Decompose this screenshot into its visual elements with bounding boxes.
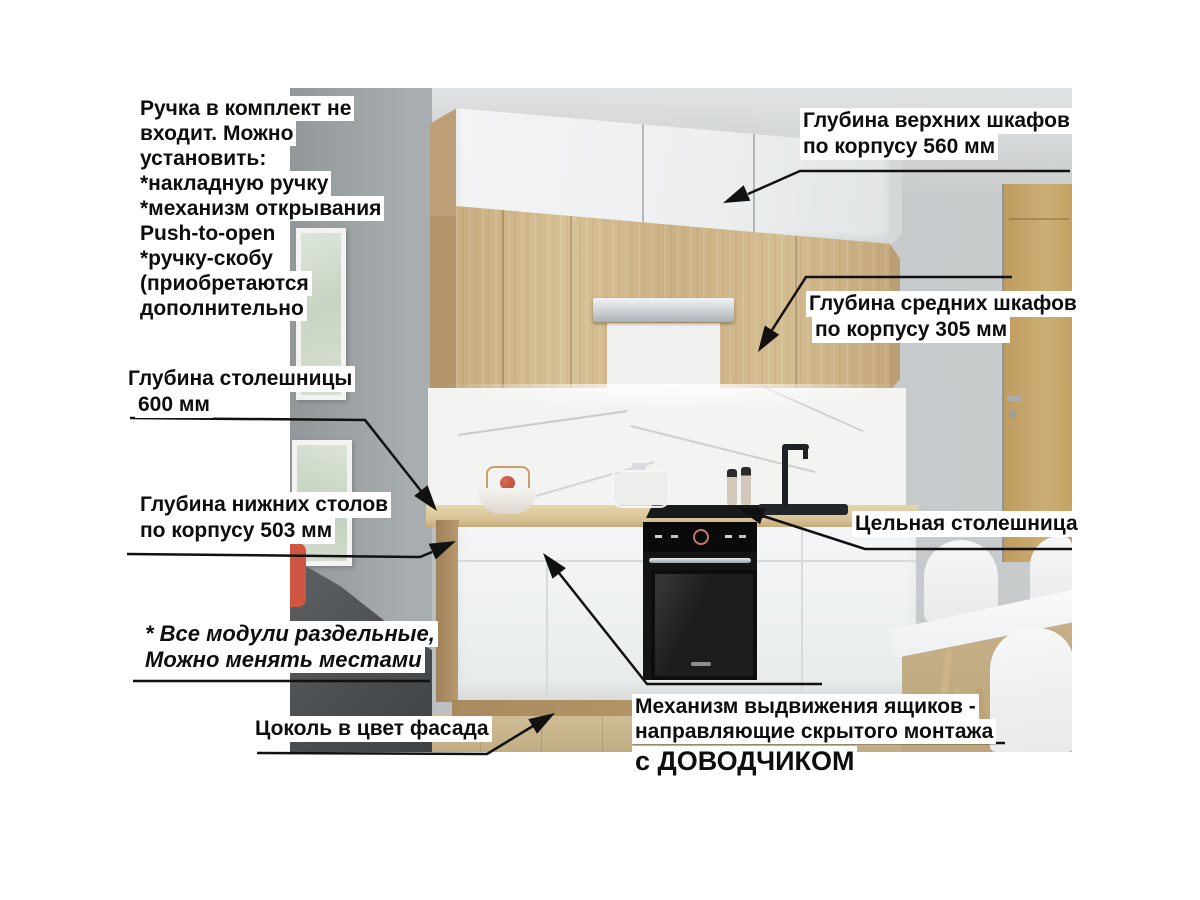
annotation-line: Глубина верхних шкафов bbox=[800, 108, 1073, 134]
annotation-line: по корпусу 305 мм bbox=[812, 317, 1010, 343]
annotation-line: дополнительно bbox=[137, 296, 307, 321]
annotation-drawer-note: Механизм выдвижения ящиков - направляющи… bbox=[632, 694, 996, 779]
arrowhead bbox=[738, 508, 765, 524]
annotation-line: *механизм открывания bbox=[137, 196, 384, 221]
annotation-line: Push-to-open bbox=[137, 221, 278, 246]
leader-line bbox=[748, 171, 1070, 194]
annotation-line: 600 мм bbox=[135, 392, 213, 418]
annotation-line: установить: bbox=[137, 146, 269, 171]
arrowhead bbox=[758, 326, 779, 353]
annotation-countertop-depth: Глубина столешницы 600 мм bbox=[125, 366, 355, 418]
annotation-line: Ручка в комплект не bbox=[137, 96, 354, 121]
arrowhead bbox=[528, 713, 555, 734]
arrowhead bbox=[543, 553, 566, 579]
leader-line bbox=[127, 552, 432, 557]
arrowhead bbox=[723, 185, 750, 203]
annotation-line: * Все модули раздельные, bbox=[142, 621, 438, 647]
annotation-line: Глубина столешницы bbox=[125, 366, 355, 392]
annotation-line: Глубина нижних столов bbox=[137, 492, 391, 518]
annotation-line: Цельная столешница bbox=[852, 511, 1081, 537]
leader-line bbox=[559, 573, 822, 684]
arrowhead bbox=[429, 541, 456, 559]
annotation-line: направляющие скрытого монтажа bbox=[632, 719, 996, 744]
annotation-base-depth: Глубина нижних столов по корпусу 503 мм bbox=[137, 492, 391, 544]
annotation-line: Цоколь в цвет фасада bbox=[252, 716, 492, 742]
leader-line bbox=[130, 418, 421, 491]
annotation-line: Глубина средних шкафов bbox=[806, 291, 1080, 317]
annotation-line: по корпусу 560 мм bbox=[800, 134, 998, 160]
annotation-middle-depth: Глубина средних шкафов по корпусу 305 мм bbox=[806, 291, 1080, 343]
annotation-upper-depth: Глубина верхних шкафов по корпусу 560 мм bbox=[800, 108, 1073, 160]
annotation-line: Можно менять местами bbox=[142, 647, 425, 673]
annotation-line: с ДОВОДЧИКОМ bbox=[632, 746, 857, 777]
annotation-line: (приобретаются bbox=[137, 271, 312, 296]
annotation-modules-note: * Все модули раздельные, Можно менять ме… bbox=[142, 621, 438, 673]
arrowhead bbox=[414, 485, 437, 511]
annotation-plinth-note: Цоколь в цвет фасада bbox=[252, 716, 492, 742]
annotation-line: по корпусу 503 мм bbox=[137, 518, 335, 544]
annotation-line: Механизм выдвижения ящиков - bbox=[632, 694, 979, 719]
annotated-kitchen-diagram: Ручка в комплект не входит. Можно устано… bbox=[0, 0, 1200, 900]
annotation-handle-note: Ручка в комплект не входит. Можно устано… bbox=[137, 96, 384, 321]
annotation-solid-countertop: Цельная столешница bbox=[852, 511, 1081, 537]
annotation-line: входит. Можно bbox=[137, 121, 296, 146]
annotation-line: *накладную ручку bbox=[137, 171, 331, 196]
annotation-line: *ручку-скобу bbox=[137, 246, 276, 271]
